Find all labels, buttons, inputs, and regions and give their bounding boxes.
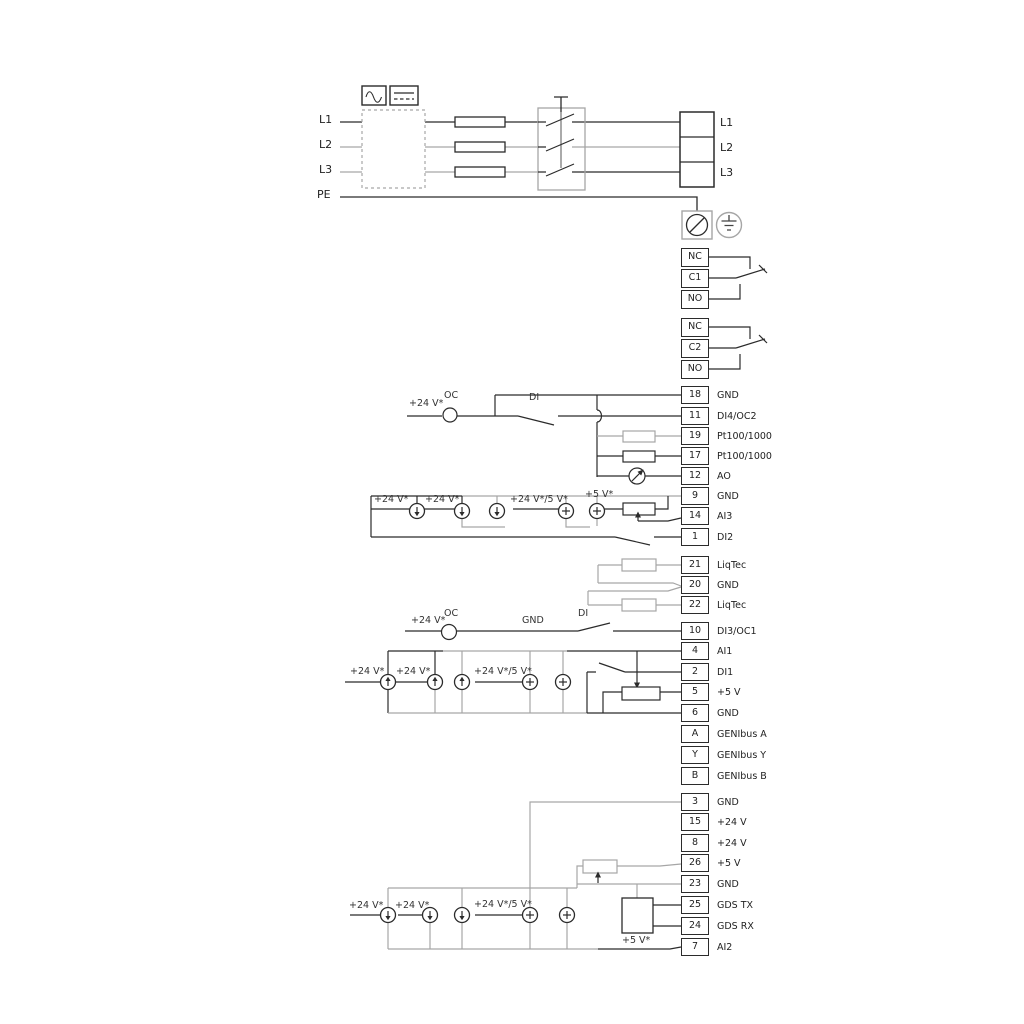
dc-icon	[390, 86, 418, 105]
terminal-21: 21LiqTec	[681, 556, 709, 574]
terminal-number: 3	[681, 793, 709, 811]
terminal-number: 20	[681, 576, 709, 594]
terminal-number: 5	[681, 683, 709, 701]
annotation-oc: OC	[444, 391, 458, 401]
terminal-label: AI1	[717, 646, 732, 657]
terminal-4: 4AI1	[681, 642, 709, 660]
terminal-23: 23GND	[681, 875, 709, 893]
terminal-label: LiqTec	[717, 560, 746, 571]
terminal-number: 17	[681, 447, 709, 465]
terminal-label: GDS RX	[717, 921, 754, 932]
terminal-6: 6GND	[681, 704, 709, 722]
mains-line-label-pe: PE	[317, 189, 331, 201]
converter-dashed-box	[362, 110, 425, 188]
annotation-5v: +5 V*	[622, 936, 650, 946]
terminal-number: 19	[681, 427, 709, 445]
terminal-2: 2DI1	[681, 663, 709, 681]
annotation-5v: +5 V*	[585, 490, 613, 500]
terminal-label: GND	[717, 390, 739, 401]
annotation-24v-5v: +24 V*/5 V*	[474, 900, 532, 910]
terminal-label: AI3	[717, 511, 732, 522]
terminal-y: YGENIbus Y	[681, 746, 709, 764]
terminal-18: 18GND	[681, 386, 709, 404]
mains-line-label-l3: L3	[319, 164, 332, 176]
terminal-number: Y	[681, 746, 709, 764]
terminal-label: GND	[717, 580, 739, 591]
terminal-number: 24	[681, 917, 709, 935]
annotation-oc: OC	[444, 609, 458, 619]
annotation-gnd: GND	[522, 616, 544, 626]
terminal-b: BGENIbus B	[681, 767, 709, 785]
terminal-label: +5 V	[717, 687, 741, 698]
terminal-number: 7	[681, 938, 709, 956]
terminal-1: 1DI2	[681, 528, 709, 546]
terminal-number: B	[681, 767, 709, 785]
relay1-terminal-c1: C1	[681, 269, 709, 288]
terminal-label: LiqTec	[717, 600, 746, 611]
terminal-label: GND	[717, 879, 739, 890]
gds-sensor-box	[622, 898, 681, 933]
terminal-3: 3GND	[681, 793, 709, 811]
terminal-number: 21	[681, 556, 709, 574]
annotation-24v-5v: +24 V*/5 V*	[474, 667, 532, 677]
potentiometer-ai3	[623, 503, 681, 521]
relay2-terminal-nc: NC	[681, 318, 709, 337]
fuse	[455, 117, 505, 177]
mains-input-wires	[340, 122, 697, 211]
relay1-terminal-nc: NC	[681, 248, 709, 267]
output-label-l1: L1	[720, 117, 733, 129]
terminal-label: GENIbus A	[717, 729, 767, 740]
annotation-24v: +24 V*	[349, 901, 383, 911]
terminal-label: DI1	[717, 667, 733, 678]
terminal-number: 1	[681, 528, 709, 546]
terminal-7: 7AI2	[681, 938, 709, 956]
terminal-14: 14AI3	[681, 507, 709, 525]
wiring-diagram-svg	[0, 0, 1024, 1024]
terminal-number: 8	[681, 834, 709, 852]
terminal-number: 9	[681, 487, 709, 505]
potentiometer-ai1	[603, 651, 681, 713]
pt100-sensor-19	[597, 431, 681, 442]
terminal-label: DI3/OC1	[717, 626, 757, 637]
terminal-number: 18	[681, 386, 709, 404]
terminal-8: 8+24 V	[681, 834, 709, 852]
annotation-24v-5v: +24 V*/5 V*	[510, 495, 568, 505]
terminal-number: A	[681, 725, 709, 743]
relay-contact-2	[709, 327, 767, 369]
terminal-label: GDS TX	[717, 900, 753, 911]
terminal-label: DI4/OC2	[717, 411, 757, 422]
pe-terminal-icon	[682, 211, 712, 239]
terminal-label: DI2	[717, 532, 733, 543]
terminal-label: AO	[717, 471, 731, 482]
terminal-number: 11	[681, 407, 709, 425]
terminal-15: 15+24 V	[681, 813, 709, 831]
annotation-24v: +24 V*	[350, 667, 384, 677]
annotation-di: DI	[529, 393, 539, 403]
mains-line-label-l1: L1	[319, 114, 332, 126]
terminal-label: +5 V	[717, 858, 741, 869]
terminal-label: AI2	[717, 942, 732, 953]
annotation-24v: +24 V*	[396, 667, 430, 677]
terminal-label: Pt100/1000	[717, 451, 772, 462]
terminal-20: 20GND	[681, 576, 709, 594]
liqtec-sensor-22	[588, 587, 681, 611]
pt100-sensor-17	[597, 451, 681, 462]
terminal-9: 9GND	[681, 487, 709, 505]
terminal-number: 6	[681, 704, 709, 722]
terminal-5: 5+5 V	[681, 683, 709, 701]
terminal-26: 26+5 V	[681, 854, 709, 872]
terminal-label: GND	[717, 491, 739, 502]
terminal-19: 19Pt100/1000	[681, 427, 709, 445]
terminal-label: GENIbus B	[717, 771, 767, 782]
terminal-number: 25	[681, 896, 709, 914]
terminal-a: AGENIbus A	[681, 725, 709, 743]
terminal-number: 4	[681, 642, 709, 660]
terminal-24: 24GDS RX	[681, 917, 709, 935]
terminal-label: GND	[717, 708, 739, 719]
terminal-number: 26	[681, 854, 709, 872]
annotation-24v: +24 V*	[409, 399, 443, 409]
annotation-24v: +24 V*	[425, 495, 459, 505]
annotation-24v: +24 V*	[411, 616, 445, 626]
ac-waveform-icon	[362, 86, 386, 105]
terminal-label: +24 V	[717, 817, 747, 828]
wiring-diagram: L1 L2 L3 PE L1 L2 L3 NC C1 NO NC C2 NO 1…	[0, 0, 1024, 1024]
liqtec-sensor-21	[598, 559, 681, 586]
terminal-22: 22LiqTec	[681, 596, 709, 614]
annotation-di: DI	[578, 609, 588, 619]
annotation-24v: +24 V*	[374, 495, 408, 505]
terminal-17: 17Pt100/1000	[681, 447, 709, 465]
relay-contact-1	[709, 257, 767, 299]
output-label-l3: L3	[720, 167, 733, 179]
terminal-12: 12AO	[681, 467, 709, 485]
relay2-terminal-no: NO	[681, 360, 709, 379]
terminal-10: 10DI3/OC1	[681, 622, 709, 640]
analog-output-meter-icon	[597, 468, 681, 484]
terminal-number: 10	[681, 622, 709, 640]
terminal-number: 12	[681, 467, 709, 485]
relay2-terminal-c2: C2	[681, 339, 709, 358]
annotation-24v: +24 V*	[395, 901, 429, 911]
terminal-25: 25GDS TX	[681, 896, 709, 914]
terminal-label: +24 V	[717, 838, 747, 849]
earth-ground-icon	[717, 213, 742, 238]
terminal-label: GENIbus Y	[717, 750, 766, 761]
terminal-11: 11DI4/OC2	[681, 407, 709, 425]
terminal-number: 2	[681, 663, 709, 681]
relay1-terminal-no: NO	[681, 290, 709, 309]
mains-terminal-block	[680, 112, 714, 187]
main-switch	[538, 97, 585, 190]
mains-line-label-l2: L2	[319, 139, 332, 151]
terminal-label: GND	[717, 797, 739, 808]
terminal-number: 22	[681, 596, 709, 614]
terminal-number: 15	[681, 813, 709, 831]
terminal-label: Pt100/1000	[717, 431, 772, 442]
terminal-number: 14	[681, 507, 709, 525]
output-label-l2: L2	[720, 142, 733, 154]
terminal-number: 23	[681, 875, 709, 893]
